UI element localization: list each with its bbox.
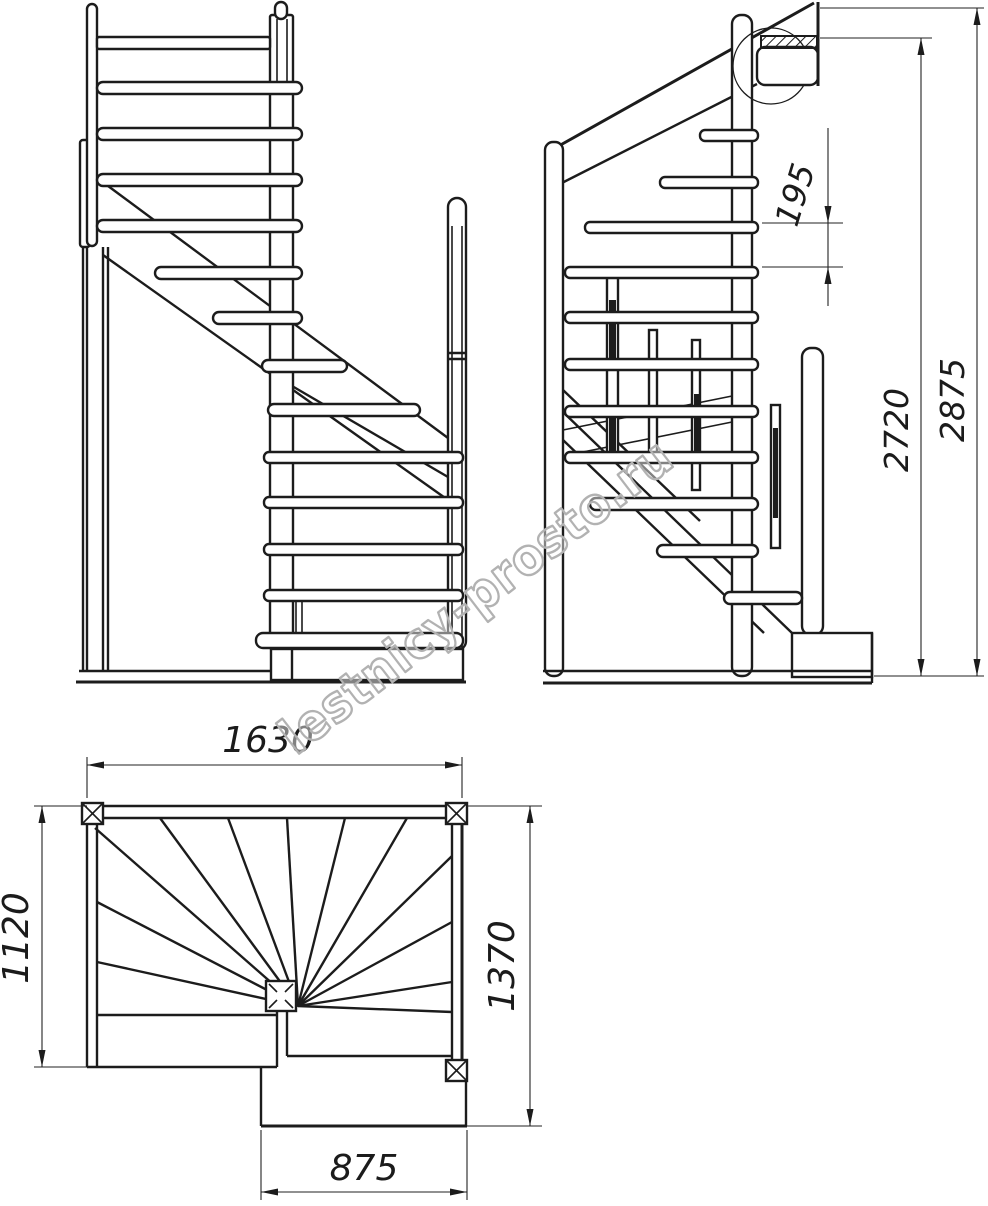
- side-tread: [724, 592, 802, 604]
- side-central-post: [732, 15, 752, 676]
- front-rail: [97, 82, 302, 94]
- dimension-2720: 2720: [820, 38, 932, 676]
- front-left-post: [87, 4, 97, 246]
- dimension-195: 195: [762, 128, 843, 306]
- dimension-1370: 1370: [467, 806, 542, 1126]
- side-elevation-view: [543, 2, 872, 683]
- front-tread: [155, 267, 302, 279]
- side-floor-hatch: [761, 36, 817, 48]
- front-rail: [97, 37, 270, 49]
- side-baluster-fill: [773, 428, 778, 518]
- side-rail: [585, 222, 758, 233]
- drawing-svg: 195 2720 2875 1630: [0, 0, 988, 1206]
- dimension-label-plan-depth-left: 1120: [0, 892, 37, 984]
- dimension-label-floor-height: 2720: [877, 388, 916, 472]
- dimension-label-overall-height: 2875: [933, 358, 972, 442]
- side-baluster-fill: [694, 394, 699, 456]
- front-rail: [264, 544, 463, 555]
- front-rail: [97, 220, 302, 232]
- side-newel-post: [802, 348, 823, 635]
- dimension-label-rail-spacing: 195: [767, 159, 823, 231]
- side-landing-beam: [757, 47, 818, 85]
- front-elevation-view: [76, 2, 466, 682]
- side-rail: [660, 177, 758, 188]
- front-rail: [264, 497, 463, 508]
- side-rail: [700, 130, 758, 141]
- dimension-label-lower-step-width: 875: [330, 1148, 399, 1189]
- side-rail: [565, 267, 758, 278]
- front-tread: [213, 312, 302, 324]
- side-rail: [565, 312, 758, 323]
- side-rail: [565, 359, 758, 370]
- side-tread: [657, 545, 758, 557]
- staircase-technical-drawing: 195 2720 2875 1630: [0, 0, 988, 1206]
- dimension-875: 875: [261, 1130, 467, 1200]
- side-baluster-fill: [609, 300, 616, 366]
- side-left-post: [545, 142, 563, 676]
- front-central-post-cap: [275, 2, 287, 19]
- dimension-1630: 1630: [87, 720, 462, 798]
- front-tread: [268, 404, 420, 416]
- plan-corner-post: [446, 803, 467, 824]
- plan-view: [82, 803, 467, 1126]
- front-rail: [97, 128, 302, 140]
- front-tread: [262, 360, 347, 372]
- front-rail: [264, 452, 463, 463]
- plan-corner-post: [446, 1060, 467, 1081]
- side-rail: [565, 406, 758, 417]
- dimension-2875: 2875: [820, 8, 984, 676]
- front-rail: [97, 174, 302, 186]
- dimension-label-plan-depth-right: 1370: [482, 920, 523, 1012]
- dimension-1120: 1120: [0, 806, 87, 1067]
